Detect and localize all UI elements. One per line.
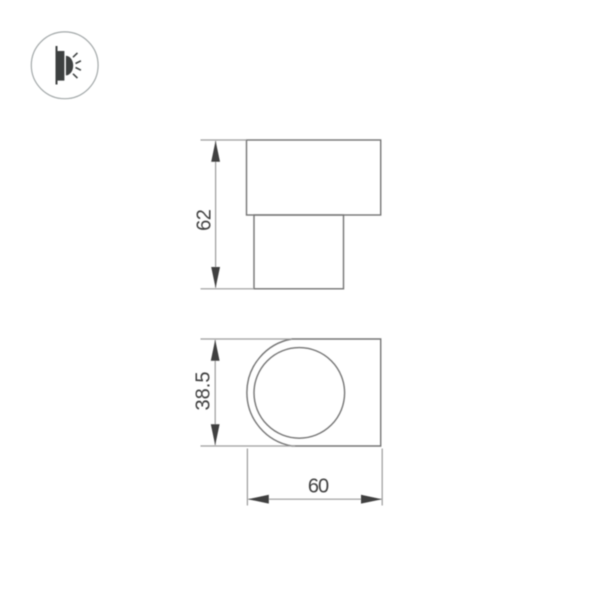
svg-text:60: 60 [308,475,329,497]
svg-text:38.5: 38.5 [193,372,215,411]
svg-text:62: 62 [193,209,215,231]
